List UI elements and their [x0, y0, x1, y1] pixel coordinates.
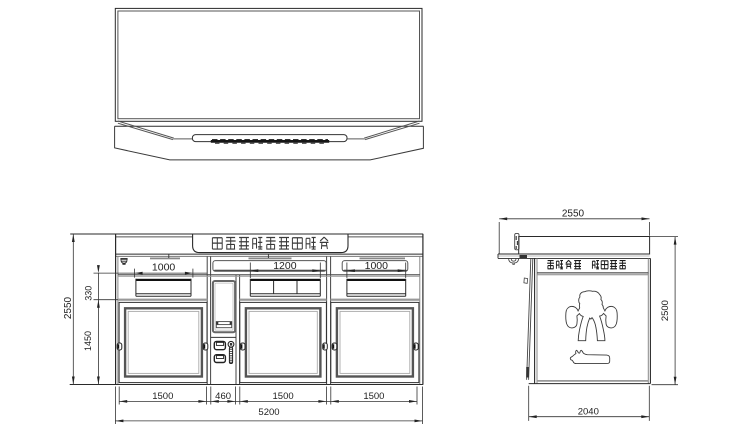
svg-text:5200: 5200: [258, 407, 279, 418]
svg-text:1500: 1500: [363, 391, 384, 402]
svg-text:2550: 2550: [63, 296, 74, 319]
svg-text:1000: 1000: [365, 260, 389, 272]
svg-text:1000: 1000: [152, 262, 176, 274]
svg-text:330: 330: [84, 286, 94, 301]
svg-text:1450: 1450: [83, 331, 93, 351]
svg-text:2040: 2040: [578, 406, 599, 417]
svg-text:1200: 1200: [273, 260, 297, 272]
svg-text:2500: 2500: [660, 300, 671, 321]
svg-text:2550: 2550: [562, 209, 585, 220]
svg-text:1500: 1500: [152, 391, 173, 402]
svg-text:1500: 1500: [273, 391, 294, 402]
svg-text:460: 460: [215, 391, 231, 402]
